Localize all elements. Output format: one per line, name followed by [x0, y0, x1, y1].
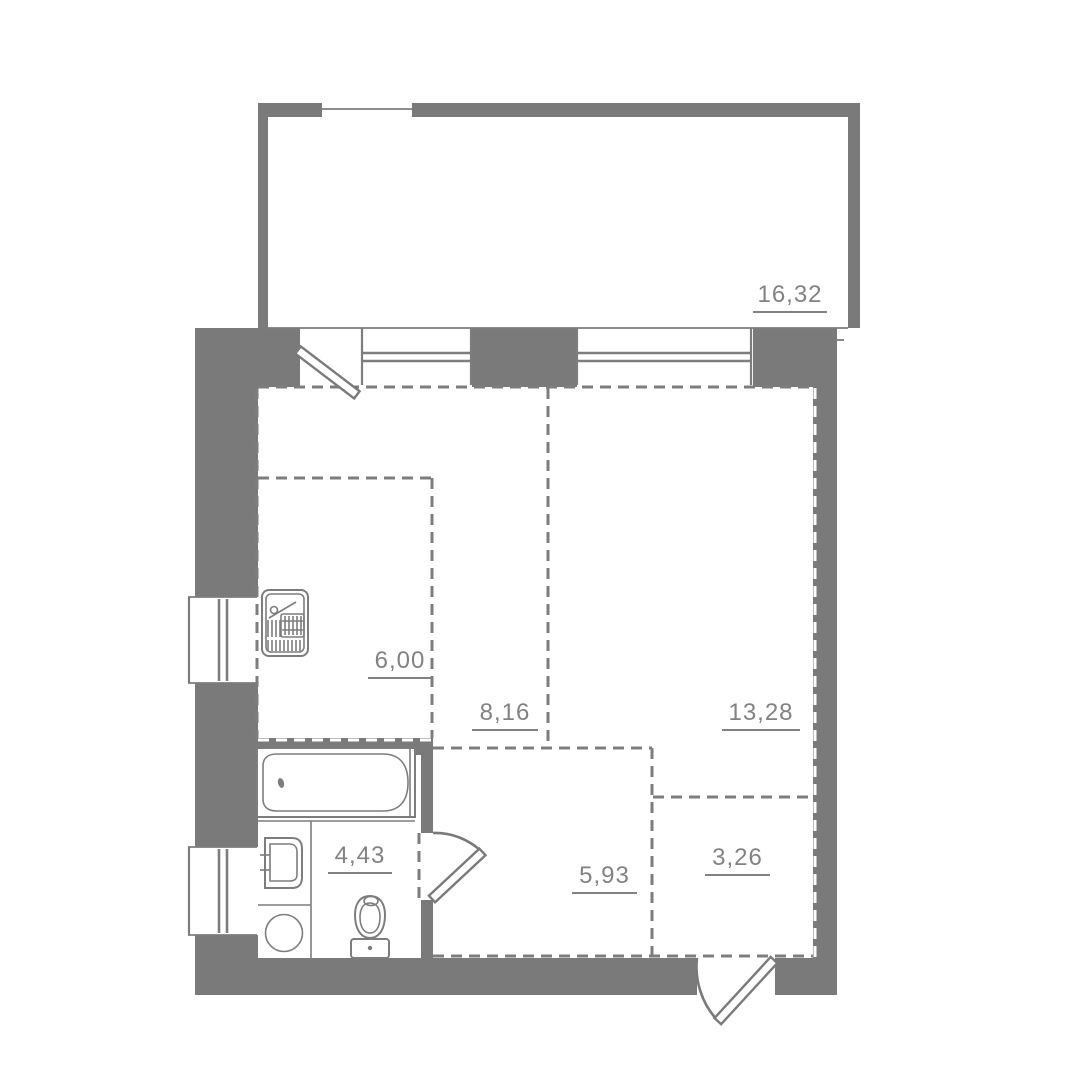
area-value: 8,16	[480, 699, 531, 726]
area-label-kitchen: 6,00	[368, 649, 432, 679]
door-leaf	[295, 346, 359, 398]
floor-plan: 16,32 6,00 8,16 13,28 4,43 5,93 3,26	[0, 0, 1080, 1080]
area-label-wardrobe: 3,26	[705, 846, 770, 876]
entrance-door-icon	[697, 957, 778, 1024]
window-left-2-icon	[188, 847, 258, 935]
wall-segment	[813, 330, 837, 995]
window-niche	[188, 847, 258, 935]
wall-segment	[421, 752, 433, 833]
toilet-button	[368, 946, 372, 950]
area-label-hallway: 5,93	[572, 864, 637, 894]
area-value: 16,32	[757, 281, 822, 308]
window-top-a-icon	[362, 328, 471, 385]
area-value: 13,28	[728, 699, 793, 726]
wall-segment	[258, 103, 268, 328]
wall-segment	[195, 683, 258, 847]
door-leaf	[715, 957, 778, 1024]
drainboard-comb	[268, 640, 300, 651]
kitchen-sink-icon	[262, 590, 308, 656]
window-niche	[188, 597, 258, 683]
wall-segment	[412, 103, 860, 117]
bathtub-icon	[257, 748, 415, 817]
floor-plan-drawing	[0, 0, 1080, 1080]
window-left-1-icon	[188, 597, 258, 683]
washing-machine-icon	[266, 915, 303, 952]
balcony-door-icon	[295, 346, 359, 398]
area-value: 6,00	[375, 647, 426, 674]
door-leaf	[429, 849, 486, 903]
bathroom-door-icon	[429, 833, 486, 902]
area-value: 4,43	[335, 842, 386, 869]
area-label-living: 13,28	[722, 701, 800, 731]
area-value: 3,26	[712, 844, 763, 871]
door-swing-arc	[433, 833, 481, 851]
wall-segment	[195, 958, 697, 995]
wall-segment	[472, 328, 577, 387]
door-swing-arc	[697, 958, 718, 1021]
toilet-icon	[351, 896, 389, 958]
wall-segment	[421, 900, 433, 958]
area-label-room: 8,16	[472, 701, 538, 731]
wall-segment	[258, 103, 322, 117]
wall-segment	[848, 103, 860, 328]
area-label-balcony: 16,32	[753, 283, 827, 313]
wall-segment	[195, 328, 258, 597]
area-value: 5,93	[579, 862, 630, 889]
area-label-bathroom: 4,43	[328, 844, 392, 874]
window-top-b-icon	[577, 328, 751, 385]
